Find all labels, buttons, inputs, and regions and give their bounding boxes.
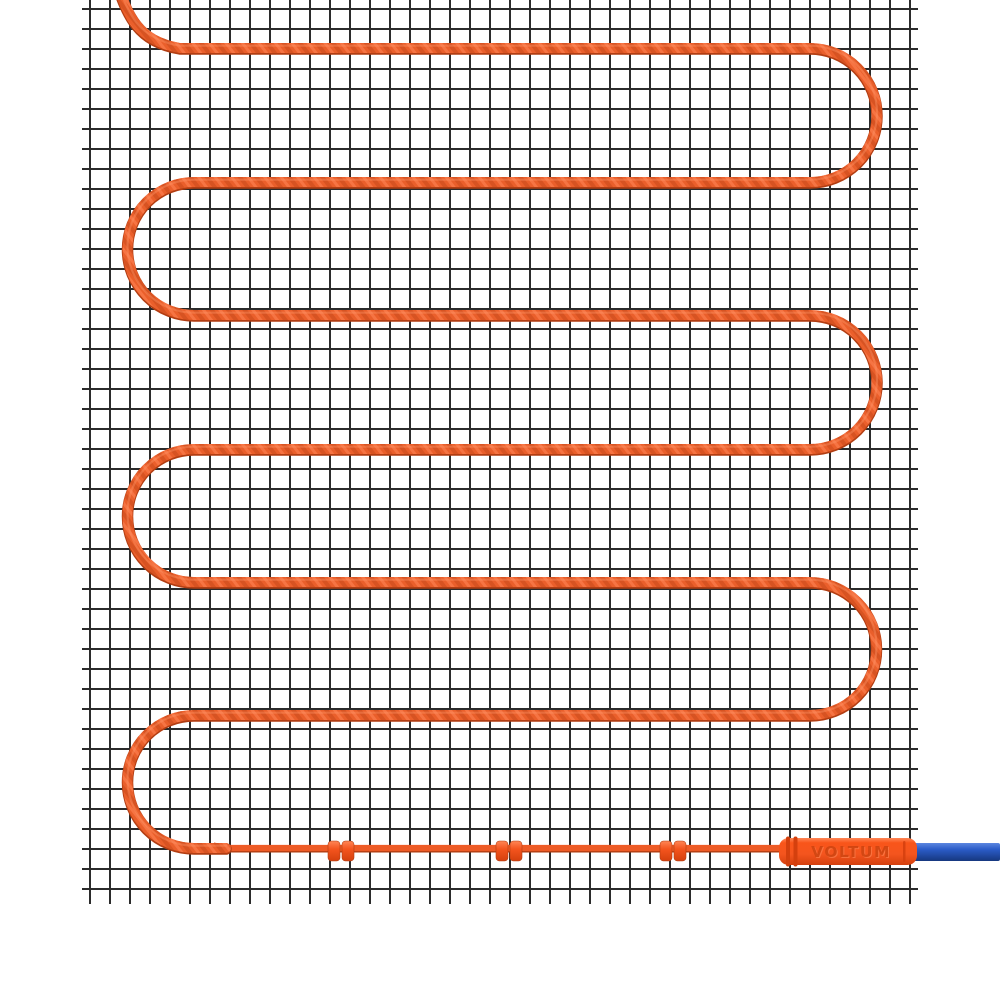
cable-clip xyxy=(496,841,508,861)
cable-clip xyxy=(510,841,522,861)
power-cable xyxy=(908,843,1000,861)
voltum-connector: VOLTUM VOLTUM xyxy=(779,837,917,867)
heating-mat-cable-layer: VOLTUM VOLTUM xyxy=(0,0,1000,1000)
heating-cable-shadow xyxy=(112,0,877,849)
connector-collar-ridge xyxy=(786,837,790,867)
cable-clip xyxy=(674,841,686,861)
cable-clip xyxy=(328,841,340,861)
connector-collar-ridge xyxy=(794,837,798,867)
underfloor-heating-mat-image: VOLTUM VOLTUM xyxy=(0,0,1000,1000)
cable-clip xyxy=(660,841,672,861)
cable-clip xyxy=(342,841,354,861)
connector-label: VOLTUM xyxy=(811,843,891,861)
connector-end-groove xyxy=(903,841,906,862)
